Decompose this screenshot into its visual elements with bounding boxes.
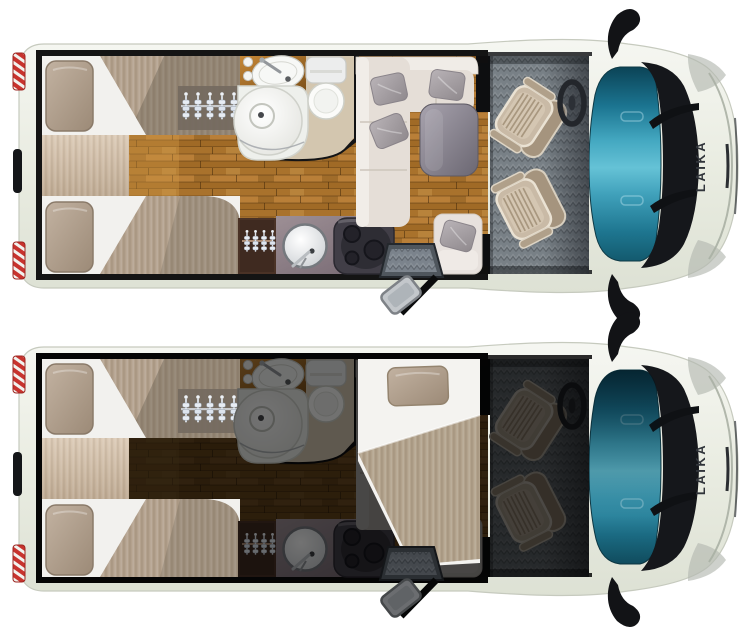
- floorplan-night: [13, 312, 738, 627]
- day-cab: [487, 56, 589, 274]
- floorplan-day: [13, 9, 738, 324]
- night-windshield-tint: [589, 370, 661, 564]
- motorhome-floorplans: LAIKA: [0, 0, 740, 642]
- night-cab-dimmed: [487, 359, 589, 577]
- day-bathroom: [234, 53, 354, 160]
- night-bathroom-dimmed: [234, 356, 354, 463]
- floorplans-canvas: LAIKA: [0, 0, 740, 642]
